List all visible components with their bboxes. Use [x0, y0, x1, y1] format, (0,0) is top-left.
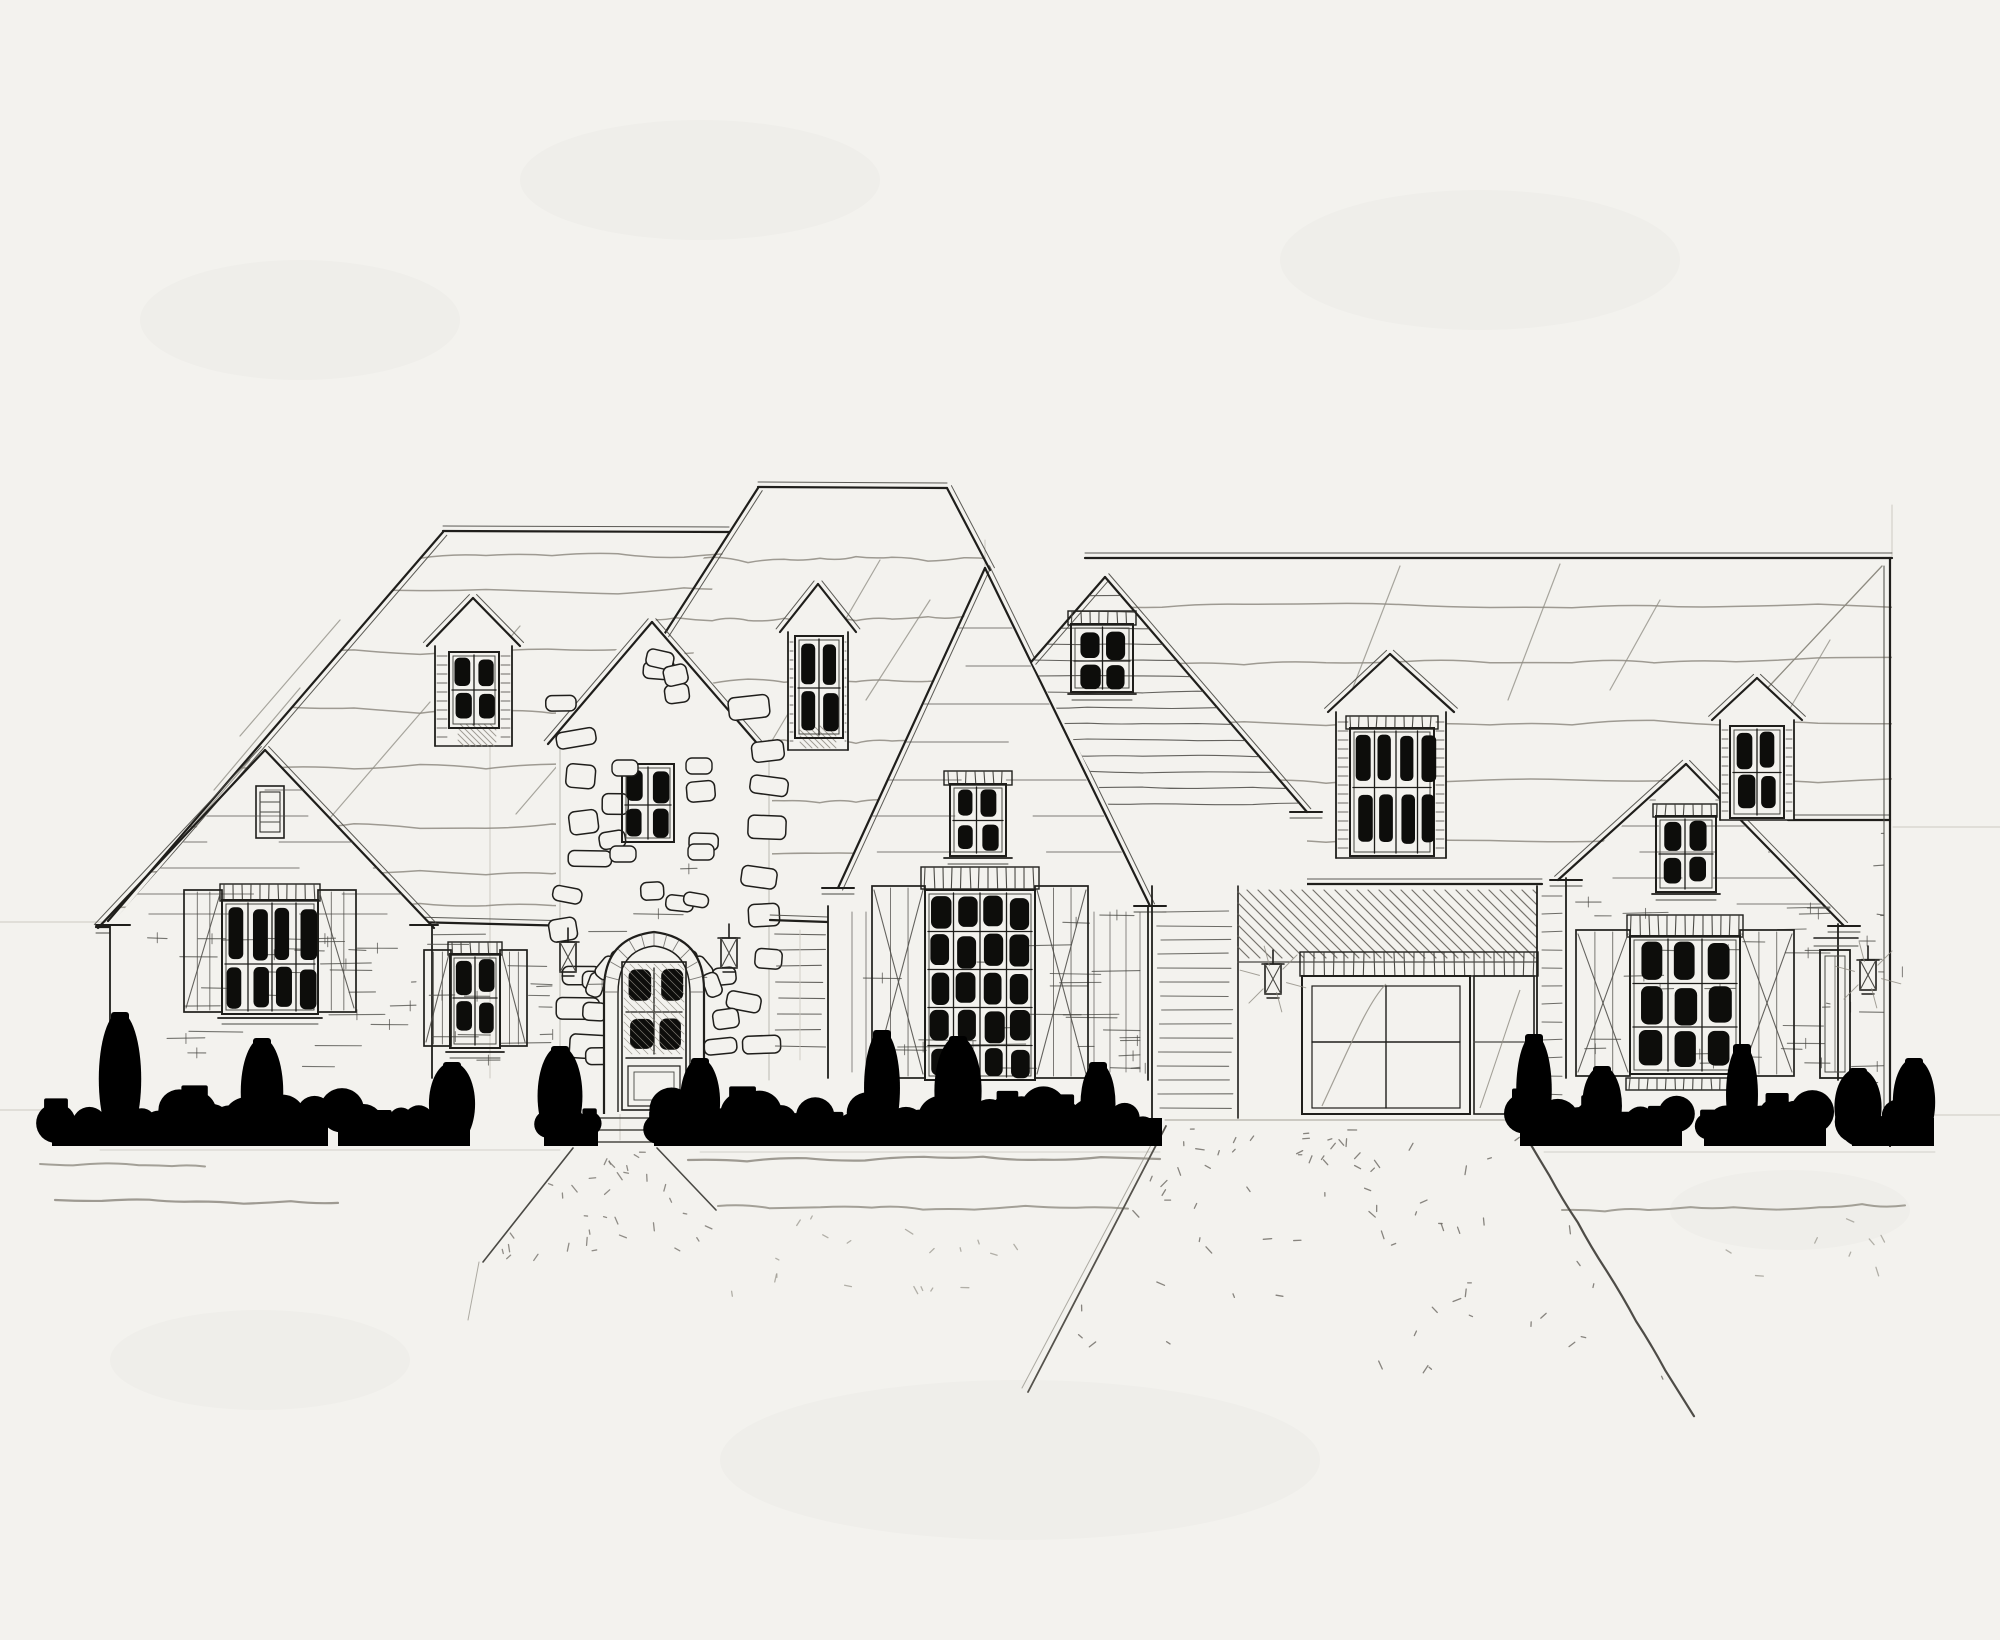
lantern-sconce [1240, 946, 1306, 1012]
sketch-page: Hand-drawn front elevation sketch of a F… [0, 0, 2000, 1640]
garage-bay [1152, 886, 1562, 1120]
window [424, 942, 527, 1058]
left-roof-dormer-2 [776, 581, 860, 750]
house-elevation-drawing [0, 0, 2000, 1640]
